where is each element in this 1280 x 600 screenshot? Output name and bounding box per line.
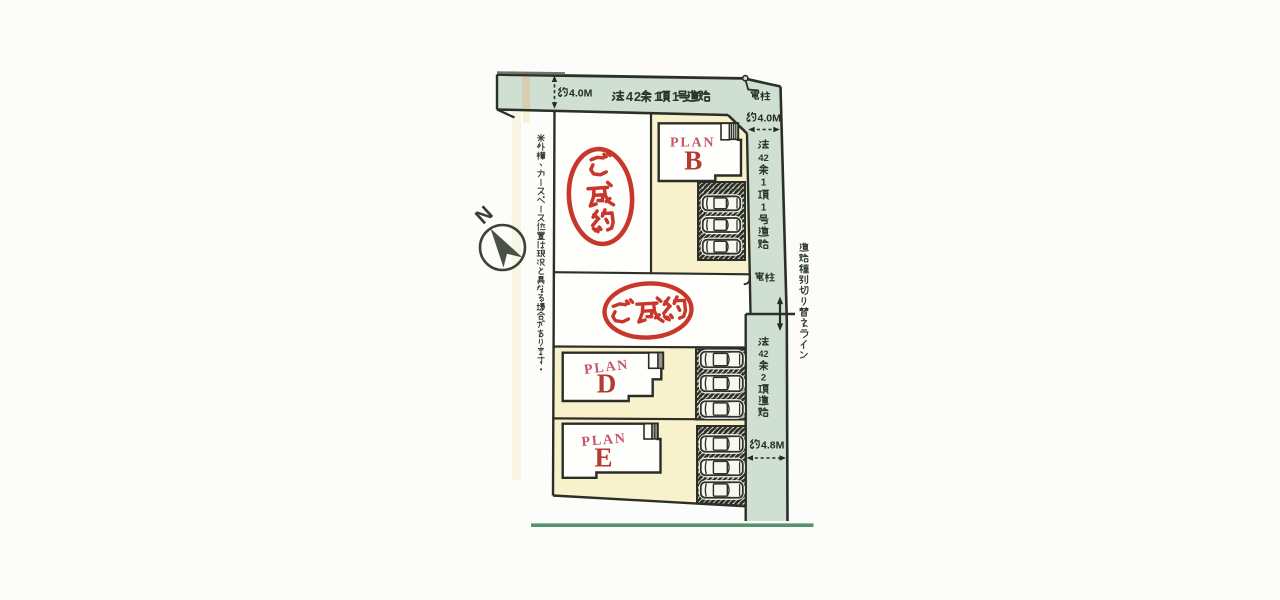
svg-text:4.0M: 4.0M <box>758 113 782 125</box>
svg-text:D: D <box>597 369 617 399</box>
svg-text:E: E <box>594 443 612 473</box>
svg-text:4.8M: 4.8M <box>761 440 785 452</box>
svg-text:2: 2 <box>634 89 641 104</box>
svg-text:B: B <box>684 146 702 176</box>
svg-text:42: 42 <box>758 349 768 359</box>
svg-text:4: 4 <box>626 89 634 104</box>
svg-text:2: 2 <box>761 373 766 384</box>
svg-text:1: 1 <box>761 203 767 214</box>
svg-text:4.0M: 4.0M <box>569 88 593 100</box>
svg-text:1: 1 <box>761 178 767 189</box>
svg-text:42: 42 <box>758 153 769 164</box>
